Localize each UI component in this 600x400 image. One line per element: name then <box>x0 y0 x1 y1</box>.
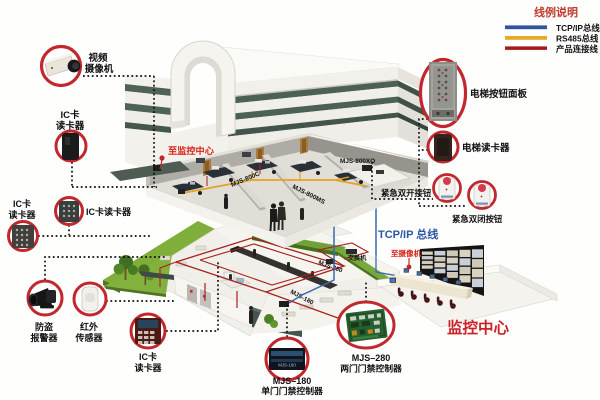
svg-text:MJS-800XO: MJS-800XO <box>340 158 375 165</box>
svg-text:TCP/IP总线: TCP/IP总线 <box>556 23 600 33</box>
svg-text:线例说明: 线例说明 <box>534 5 578 19</box>
svg-text:摄像机: 摄像机 <box>85 63 114 75</box>
svg-text:紧急双开接钮: 紧急双开接钮 <box>381 188 432 198</box>
svg-text:IC卡读卡器: IC卡读卡器 <box>86 206 132 217</box>
svg-text:IC卡: IC卡 <box>60 109 80 121</box>
svg-text:两门门禁控制器: 两门门禁控制器 <box>340 363 402 374</box>
svg-text:读卡器: 读卡器 <box>134 362 162 373</box>
svg-text:RS485总线: RS485总线 <box>556 34 599 44</box>
svg-text:IC卡: IC卡 <box>139 351 157 362</box>
svg-text:MJS–180: MJS–180 <box>273 376 312 386</box>
svg-text:MJS–280: MJS–280 <box>352 353 391 363</box>
svg-text:单门门禁控制器: 单门门禁控制器 <box>261 385 323 396</box>
svg-text:传感器: 传感器 <box>74 332 103 343</box>
svg-text:监控中心: 监控中心 <box>447 318 510 337</box>
svg-text:视频: 视频 <box>88 52 108 64</box>
svg-text:交换机: 交换机 <box>348 254 367 262</box>
svg-text:电梯读卡器: 电梯读卡器 <box>462 142 510 154</box>
svg-text:报警器: 报警器 <box>30 332 58 343</box>
svg-text:至摄像机: 至摄像机 <box>391 248 422 258</box>
svg-text:IC卡: IC卡 <box>13 198 31 209</box>
svg-text:红外: 红外 <box>80 321 98 332</box>
svg-text:MJS-180: MJS-180 <box>278 363 296 368</box>
svg-text:电梯按钮面板: 电梯按钮面板 <box>470 88 528 100</box>
svg-text:TCP/IP 总线: TCP/IP 总线 <box>378 227 438 241</box>
svg-text:至监控中心: 至监控中心 <box>168 145 215 156</box>
svg-text:产品连接线: 产品连接线 <box>556 44 598 54</box>
svg-text:读卡器: 读卡器 <box>8 209 36 220</box>
svg-text:紧急双闭按钮: 紧急双闭按钮 <box>452 214 503 224</box>
svg-text:防盗: 防盗 <box>35 321 53 332</box>
